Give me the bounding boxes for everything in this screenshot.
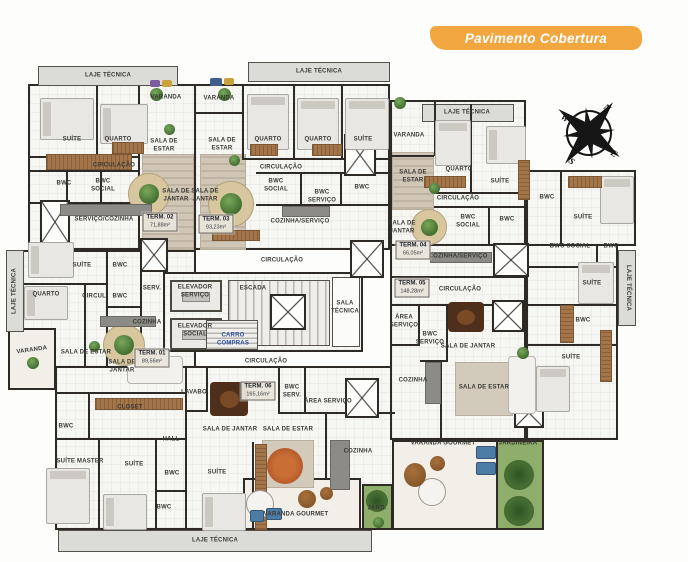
unit-tag-term-04: TERM. 0466,05m²: [395, 241, 430, 260]
shaft: [492, 300, 524, 332]
laje-strip: [58, 530, 372, 552]
bed: [247, 94, 289, 150]
wall: [488, 206, 490, 244]
bed: [103, 494, 147, 530]
wall: [340, 174, 342, 204]
wall: [418, 306, 420, 346]
round-rug: [267, 448, 303, 484]
wall: [96, 86, 98, 156]
kitchen-counter: [282, 206, 330, 217]
kitchen-counter: [60, 204, 152, 216]
kitchen-counter: [430, 252, 492, 263]
wall: [155, 490, 185, 492]
wall: [196, 112, 242, 114]
pillow-decor: [150, 80, 160, 87]
wall: [24, 283, 106, 285]
table-plant: [114, 335, 134, 355]
wall: [57, 392, 185, 394]
wall: [434, 206, 524, 208]
lounge-chair: [266, 508, 282, 520]
wall: [300, 174, 302, 204]
dining-table-dark: [448, 302, 484, 332]
wall: [57, 438, 185, 440]
rattan-chair: [320, 487, 333, 500]
closet-shelf: [95, 398, 183, 410]
plant: [27, 357, 39, 369]
table-plant: [421, 219, 438, 236]
wall: [100, 172, 102, 204]
shaft: [493, 243, 529, 277]
wall: [155, 440, 157, 528]
unit-tag-term-03: TERM. 0393,23m²: [198, 215, 233, 234]
palm-plant: [366, 490, 388, 512]
laje-strip: [618, 250, 636, 326]
plant: [373, 517, 384, 528]
unit-tag-term-01: TERM. 0189,56m²: [134, 349, 169, 368]
shaft: [140, 238, 168, 272]
plant: [164, 124, 175, 135]
wall: [392, 344, 418, 346]
wardrobe: [46, 154, 132, 170]
shaft: [345, 378, 379, 418]
laje-strip: [248, 62, 390, 82]
bed: [24, 286, 68, 320]
plant: [229, 155, 240, 166]
wall: [304, 368, 306, 414]
unit-tag-term-02: TERM. 0271,88m²: [142, 213, 177, 232]
wall: [88, 394, 90, 438]
room-label: CIRCULAÇÃO: [261, 257, 303, 265]
rug: [455, 362, 513, 416]
palm-plant: [504, 496, 534, 526]
plant: [517, 347, 529, 359]
kitchen-counter: [330, 440, 350, 490]
compass-rose: N E S W: [548, 92, 630, 174]
elevator-shaft: [270, 294, 306, 330]
wall: [98, 440, 100, 528]
plant: [218, 88, 231, 101]
table-plant: [220, 193, 242, 215]
wall: [30, 170, 138, 172]
bed: [40, 98, 94, 140]
technical-room: [332, 277, 360, 347]
bed: [297, 98, 339, 150]
table-plant: [139, 184, 159, 204]
bed: [578, 262, 614, 304]
wall: [434, 192, 524, 194]
bed: [435, 120, 471, 166]
service-elevator: [170, 280, 222, 312]
wall: [242, 86, 244, 158]
bed: [28, 242, 74, 278]
wardrobe: [312, 144, 342, 156]
cart-area: [206, 320, 258, 350]
kitchen-counter: [425, 362, 441, 404]
wall: [84, 285, 86, 366]
plant: [394, 97, 406, 109]
lounge-chair: [250, 510, 264, 522]
laje-strip: [6, 250, 24, 332]
wardrobe: [568, 176, 602, 188]
bed: [100, 104, 148, 144]
unit-tag-term-05: TERM. 05148,28m²: [394, 279, 429, 298]
bed: [600, 176, 634, 224]
rattan-chair: [404, 463, 426, 487]
bed: [486, 126, 526, 164]
rattan-chair: [430, 456, 445, 471]
kitchen-counter: [100, 316, 156, 327]
bed: [345, 98, 389, 150]
wardrobe: [112, 142, 144, 154]
bed: [536, 366, 570, 412]
pillow-decor: [162, 80, 172, 87]
rattan-chair: [298, 490, 316, 508]
wall: [108, 306, 140, 308]
wall: [187, 410, 206, 412]
floor-title-badge: Pavimento Cobertura: [430, 26, 642, 50]
plant: [150, 88, 163, 101]
wall: [325, 414, 327, 480]
floor-plan-canvas: Pavimento Cobertura N E S W LAJE TÉCNICA…: [0, 0, 688, 562]
plant: [429, 183, 440, 194]
palm-plant: [504, 460, 534, 490]
wall: [293, 86, 295, 158]
pillow-decor: [224, 78, 234, 85]
shaft: [350, 240, 384, 278]
bed: [46, 468, 90, 524]
wall: [185, 368, 187, 528]
wall: [392, 155, 434, 157]
sofa: [508, 356, 536, 414]
wardrobe: [560, 305, 574, 343]
wardrobe: [518, 160, 530, 200]
wall: [206, 368, 208, 412]
wardrobe: [250, 144, 278, 156]
plant: [89, 341, 100, 352]
lounge-chair: [476, 446, 496, 459]
wall: [278, 368, 280, 414]
wardrobe: [600, 330, 612, 382]
wall: [560, 172, 562, 244]
room-label: CIRCULAÇÃO: [245, 358, 287, 366]
lounge-chair: [476, 462, 496, 475]
unit-tag-term-06: TERM. 06165,16m²: [240, 382, 275, 401]
pillow-decor: [210, 78, 222, 86]
bed: [202, 493, 246, 531]
